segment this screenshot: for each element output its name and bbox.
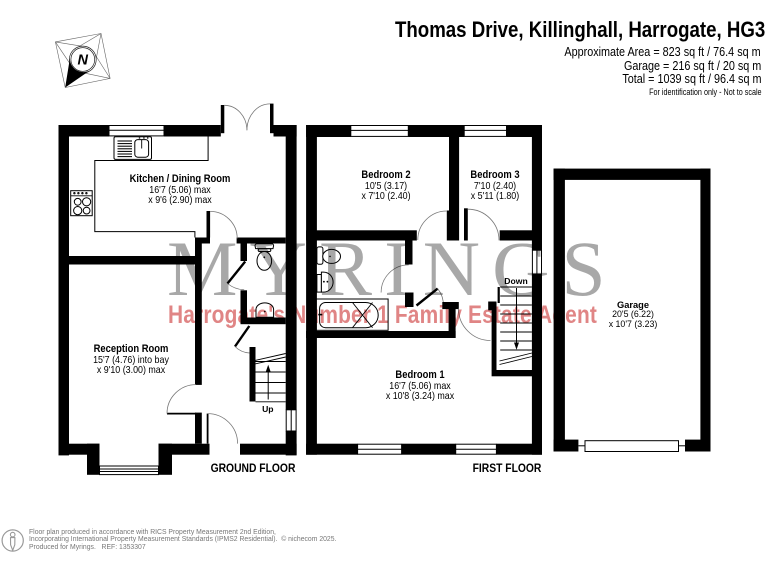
svg-text:N: N: [78, 53, 89, 69]
